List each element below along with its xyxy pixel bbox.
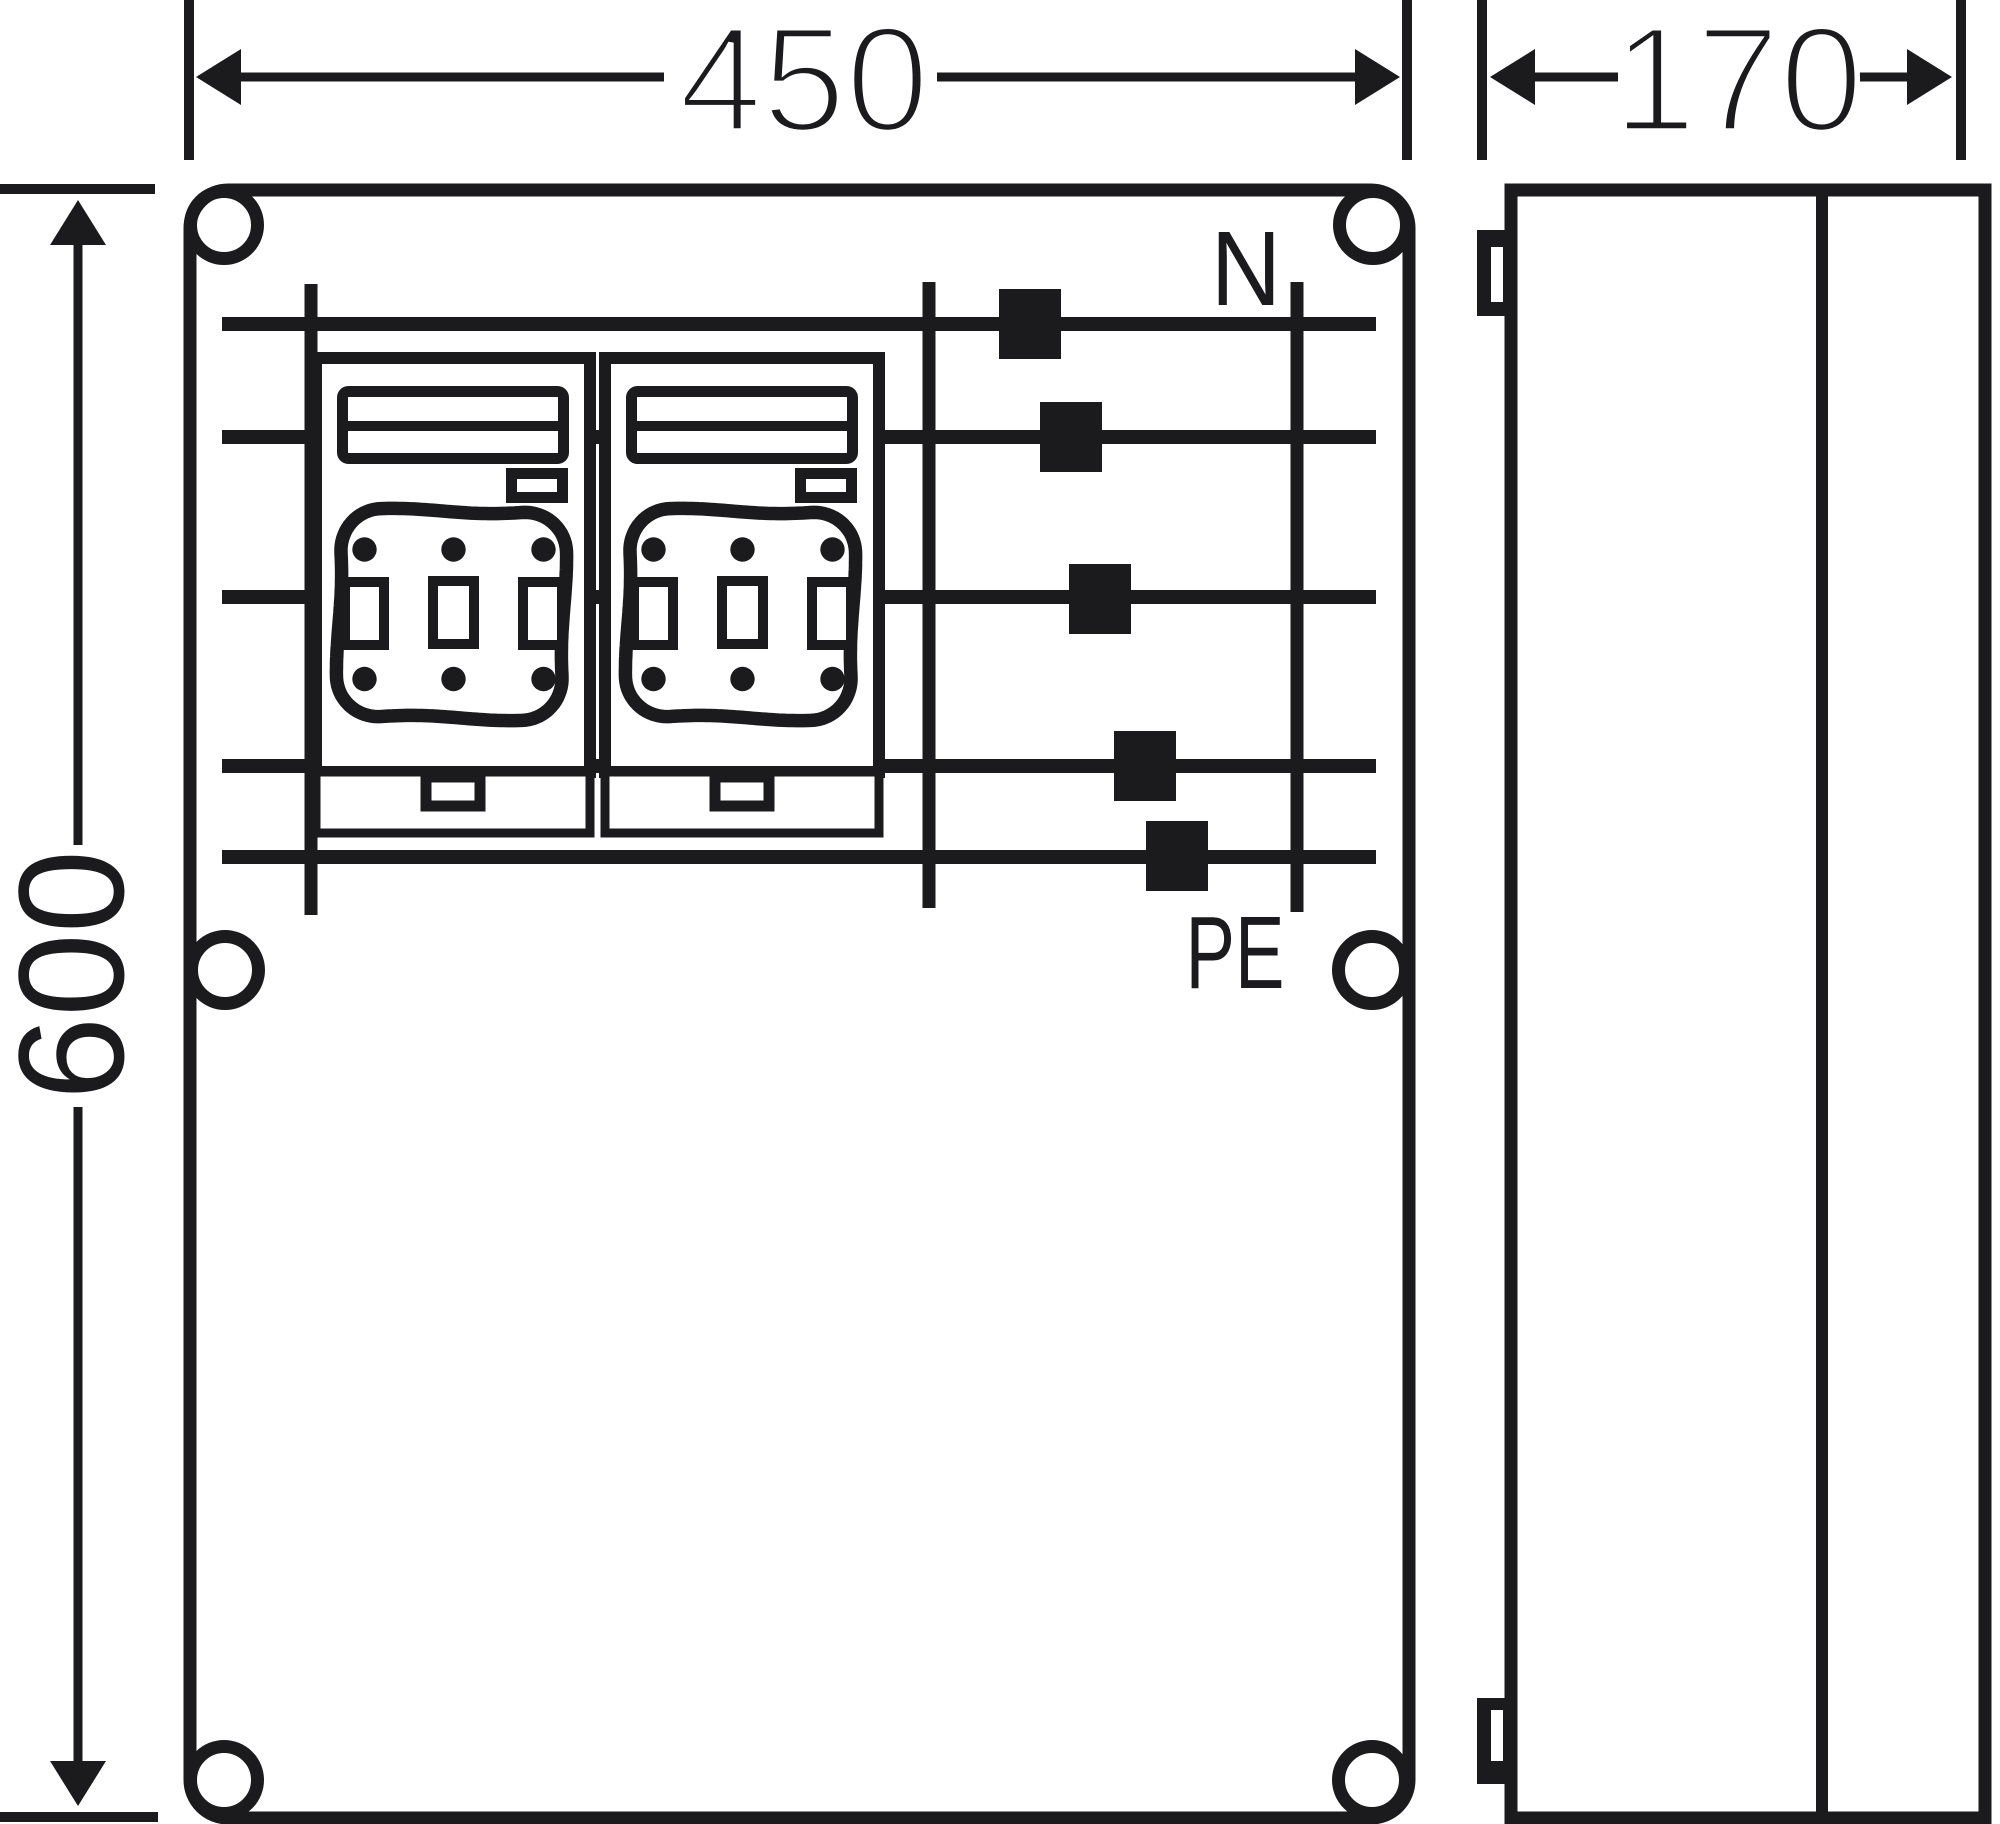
svg-text:450: 450 bbox=[679, 0, 929, 163]
svg-text:600: 600 bbox=[0, 850, 155, 1100]
svg-text:PE: PE bbox=[1186, 896, 1285, 1011]
svg-text:170: 170 bbox=[1613, 0, 1863, 163]
svg-text:N: N bbox=[1211, 209, 1281, 328]
